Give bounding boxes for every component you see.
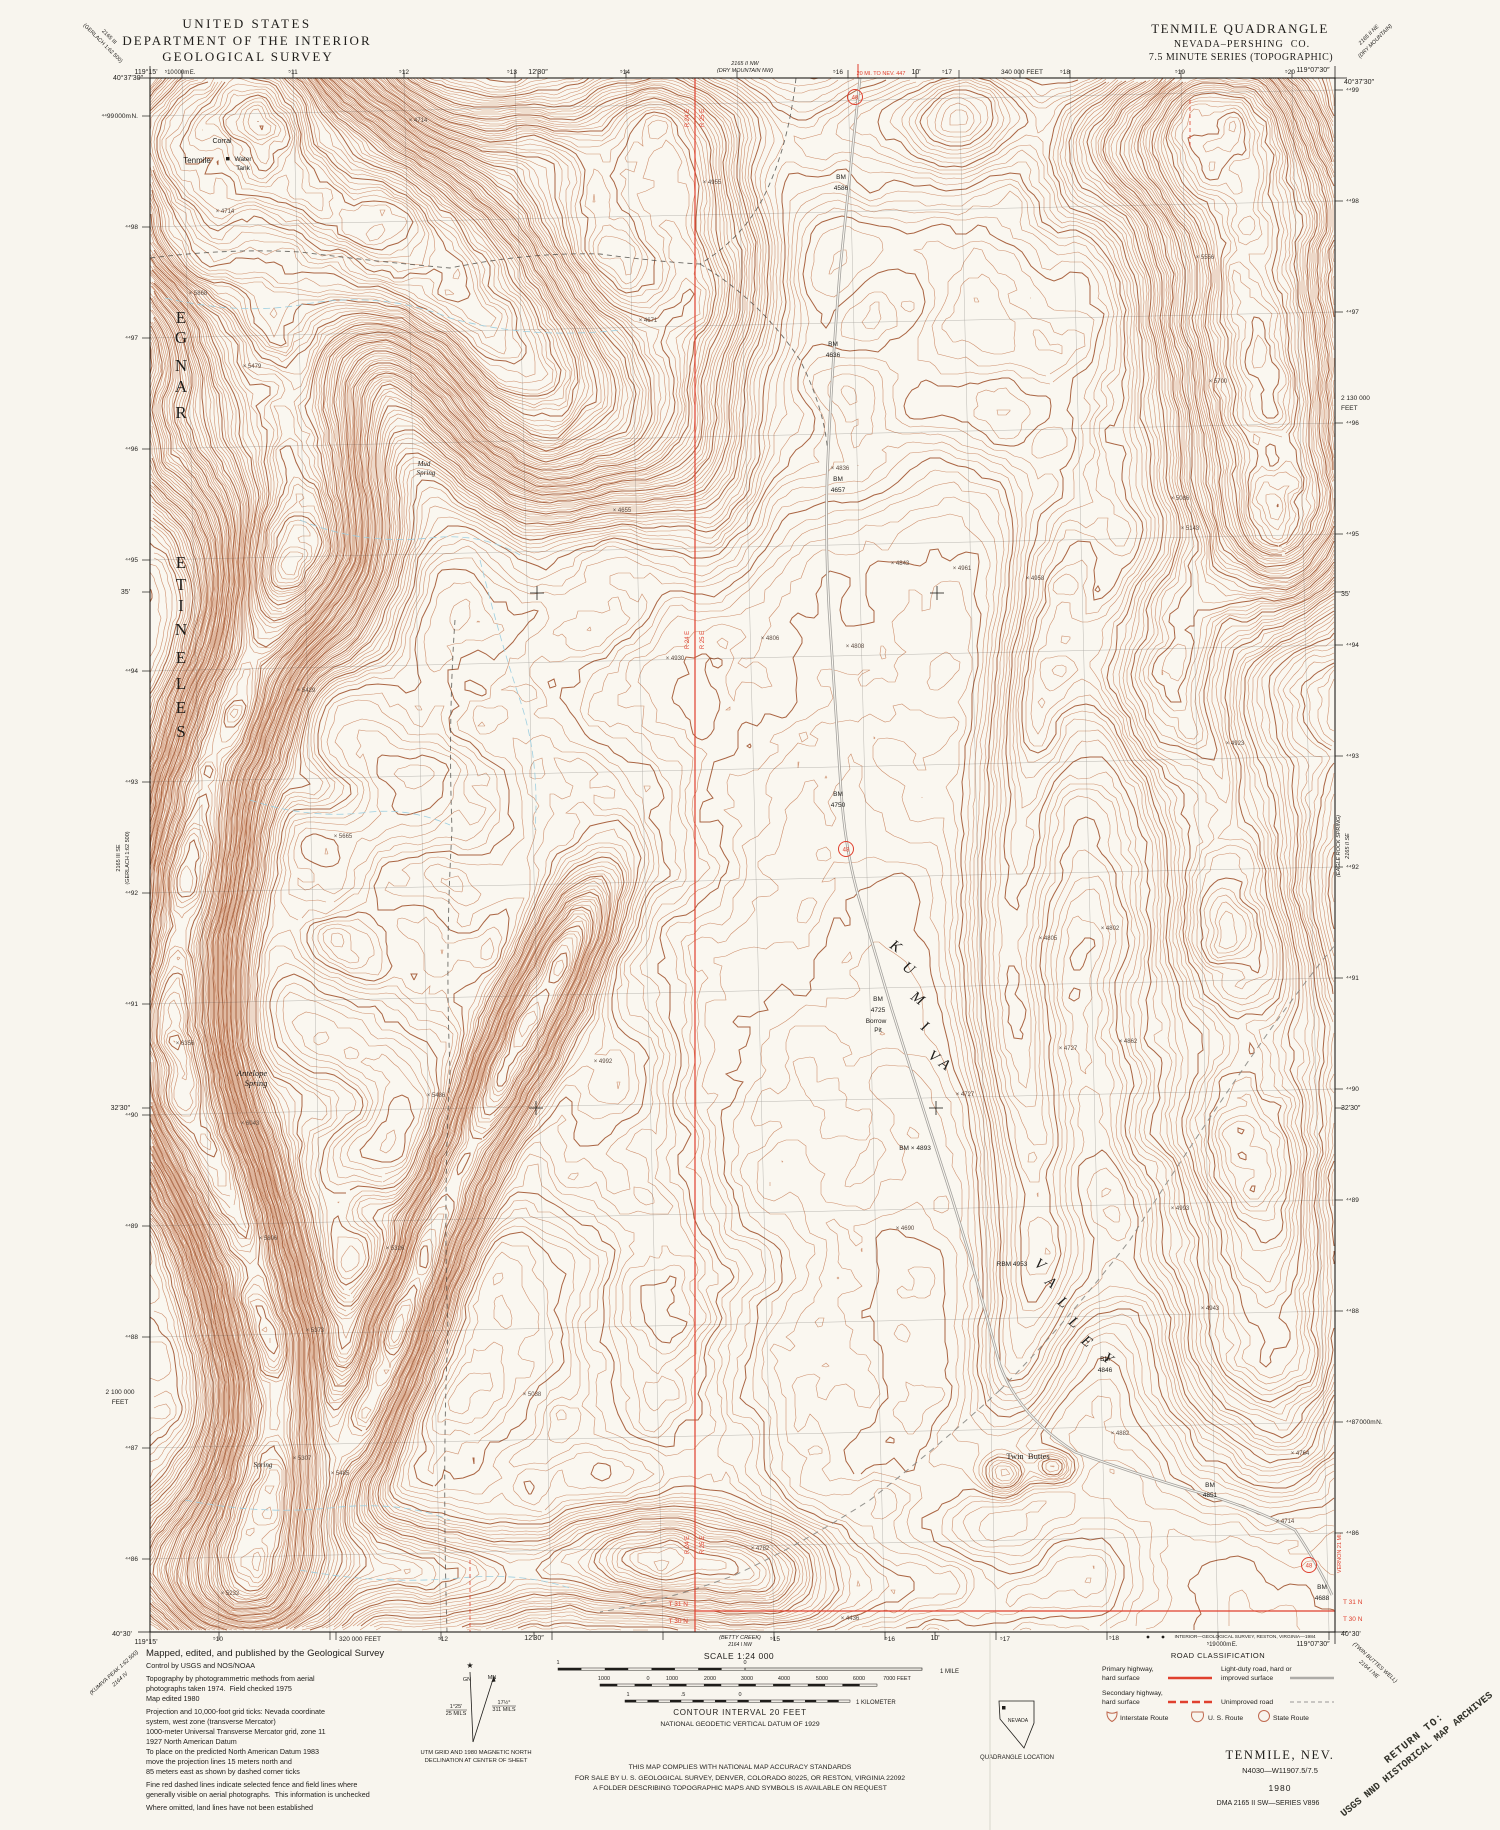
svg-text:⁴⁴88: ⁴⁴88: [125, 1334, 138, 1341]
svg-text:× 4436: × 4436: [841, 1616, 860, 1622]
svg-text:× 4862: × 4862: [1119, 1039, 1138, 1045]
svg-text:2165 II NW: 2165 II NW: [730, 61, 759, 67]
svg-text:1000: 1000: [666, 1676, 678, 1682]
svg-text:⁵18: ⁵18: [1109, 1635, 1119, 1642]
svg-text:25 MILS: 25 MILS: [446, 1711, 467, 1717]
svg-text:ROAD CLASSIFICATION: ROAD CLASSIFICATION: [1171, 1651, 1265, 1660]
svg-text:Tenmile: Tenmile: [183, 156, 211, 165]
svg-text:⁵18: ⁵18: [1060, 69, 1070, 76]
svg-text:× 5429: × 5429: [297, 688, 316, 694]
svg-text:BM × 4893: BM × 4893: [899, 1145, 931, 1152]
svg-text:× 4727: × 4727: [956, 1092, 975, 1098]
svg-text:× 5485: × 5485: [331, 1471, 350, 1477]
svg-text:× 4727: × 4727: [1059, 1046, 1078, 1052]
svg-text:Borrow: Borrow: [866, 1018, 887, 1025]
svg-text:× 5086: × 5086: [1171, 496, 1190, 502]
svg-text:⁴⁴90: ⁴⁴90: [1346, 1086, 1359, 1093]
svg-text:× 5232: × 5232: [221, 1591, 240, 1597]
svg-text:⁵11: ⁵11: [288, 69, 298, 76]
svg-text:17½°: 17½°: [498, 1699, 511, 1706]
svg-text:⁴⁴87 000m N.: ⁴⁴87 000m N.: [1346, 1419, 1383, 1426]
svg-text:Corral: Corral: [212, 138, 232, 145]
svg-text:× 5665: × 5665: [334, 834, 353, 840]
svg-text:7.5 MINUTE SERIES (TOPOGRAPHIC: 7.5 MINUTE SERIES (TOPOGRAPHIC): [1149, 52, 1333, 63]
svg-text:BM: BM: [836, 174, 846, 181]
svg-text:Water: Water: [234, 156, 252, 163]
svg-text:⁴⁴90: ⁴⁴90: [125, 1112, 138, 1119]
svg-text:48: 48: [843, 848, 850, 854]
svg-text:1000: 1000: [598, 1676, 610, 1682]
svg-text:hard surface: hard surface: [1102, 1675, 1140, 1682]
svg-text:⁵16: ⁵16: [885, 1636, 895, 1643]
svg-text:Antelope: Antelope: [236, 1068, 267, 1078]
svg-text:× 4930: × 4930: [666, 656, 685, 662]
svg-text:BM: BM: [1317, 1584, 1327, 1591]
svg-text:4586: 4586: [834, 185, 849, 192]
svg-text:E: E: [176, 698, 186, 717]
svg-text:2000: 2000: [704, 1676, 716, 1682]
svg-text:119°07'30″: 119°07'30″: [1296, 66, 1330, 74]
svg-text:40°30': 40°30': [112, 1630, 132, 1638]
svg-text:⁴⁴96: ⁴⁴96: [125, 446, 138, 453]
svg-text:★: ★: [466, 1661, 473, 1670]
svg-text:(BETTY CREEK): (BETTY CREEK): [719, 1635, 761, 1641]
svg-text:photographs taken 1974. Field: photographs taken 1974. Field checked 19…: [146, 1684, 292, 1693]
svg-text:NATIONAL GEODETIC VERTICAL DAT: NATIONAL GEODETIC VERTICAL DATUM OF 1929: [660, 1721, 819, 1728]
svg-text:Interstate Route: Interstate Route: [1120, 1715, 1169, 1722]
svg-text:⁴⁴95: ⁴⁴95: [125, 557, 138, 564]
svg-text:A: A: [175, 377, 188, 396]
svg-text:system, west zone (transverse: system, west zone (transverse Mercator): [146, 1717, 276, 1726]
svg-text:(DRY MOUNTAIN NW): (DRY MOUNTAIN NW): [717, 68, 773, 74]
svg-text:QUADRANGLE LOCATION: QUADRANGLE LOCATION: [980, 1755, 1054, 1761]
svg-text:E: E: [176, 308, 186, 327]
svg-text:⁵17: ⁵17: [942, 69, 952, 76]
svg-text:generally visible on aerial ph: generally visible on aerial photographs.…: [146, 1790, 370, 1799]
svg-text:Spring: Spring: [417, 469, 436, 477]
svg-text:R 25 E: R 25 E: [700, 631, 706, 649]
svg-text:⁴⁴97: ⁴⁴97: [125, 335, 138, 342]
svg-text:NEVADA: NEVADA: [1008, 1718, 1029, 1724]
svg-text:move the projection lines 15 m: move the projection lines 15 meters nort…: [146, 1757, 292, 1766]
svg-text:⁴⁴98: ⁴⁴98: [1346, 198, 1359, 205]
svg-text:× 4782: × 4782: [751, 1546, 770, 1552]
svg-text:T 31 N: T 31 N: [669, 1601, 689, 1608]
svg-text:N4030—W11907.5/7.5: N4030—W11907.5/7.5: [1242, 1766, 1318, 1775]
svg-text:R 25 E: R 25 E: [700, 109, 706, 127]
svg-text:R 25 E: R 25 E: [700, 1536, 706, 1554]
svg-text:improved surface: improved surface: [1221, 1675, 1273, 1682]
svg-text:× 4882: × 4882: [1111, 1431, 1130, 1437]
svg-text:T 30 N: T 30 N: [669, 1618, 689, 1625]
svg-text:40°37'30″: 40°37'30″: [1344, 78, 1374, 86]
svg-text:× 4764: × 4764: [1291, 1451, 1310, 1457]
svg-text:N: N: [175, 356, 187, 375]
svg-text:FEET: FEET: [1341, 405, 1358, 412]
svg-text:6000: 6000: [853, 1676, 865, 1682]
svg-text:⁴⁴96: ⁴⁴96: [1346, 420, 1359, 427]
svg-text:32'30″: 32'30″: [111, 1105, 131, 1112]
svg-text:Mapped, edited, and published: Mapped, edited, and published by the Geo…: [146, 1648, 384, 1659]
svg-text:× 5326: × 5326: [386, 1246, 405, 1252]
svg-text:⁴⁴97: ⁴⁴97: [1346, 309, 1359, 316]
svg-text:.5: .5: [681, 1692, 686, 1698]
svg-text:2165 II SE: 2165 II SE: [1345, 833, 1351, 860]
svg-text:(EAGLE ROCK SPRING): (EAGLE ROCK SPRING): [1336, 815, 1342, 877]
svg-text:BM: BM: [828, 341, 838, 348]
svg-text:4725: 4725: [871, 1007, 886, 1014]
svg-text:119°15': 119°15': [134, 1638, 157, 1646]
svg-text:State Route: State Route: [1273, 1715, 1309, 1722]
svg-text:MN: MN: [488, 1675, 497, 1681]
svg-text:0: 0: [646, 1676, 649, 1682]
svg-text:3000: 3000: [741, 1676, 753, 1682]
svg-text:I: I: [178, 596, 184, 615]
svg-text:⁴⁴93: ⁴⁴93: [125, 779, 138, 786]
svg-text:BM: BM: [873, 996, 883, 1003]
svg-text:Secondary highway,: Secondary highway,: [1102, 1690, 1163, 1697]
svg-text:1: 1: [626, 1692, 629, 1698]
svg-text:12'30″: 12'30″: [524, 1635, 544, 1642]
svg-text:Mud: Mud: [417, 460, 431, 468]
svg-text:Tank: Tank: [236, 165, 250, 172]
svg-text:× 4958: × 4958: [1026, 576, 1045, 582]
svg-text:⁵10: ⁵10: [213, 1636, 223, 1643]
svg-text:1000-meter Universal Transvers: 1000-meter Universal Transverse Mercator…: [146, 1727, 326, 1736]
svg-text:U. S. Route: U. S. Route: [1208, 1715, 1243, 1722]
svg-text:NEVADA–PERSHING CO.: NEVADA–PERSHING CO.: [1174, 39, 1310, 50]
svg-text:L: L: [176, 674, 186, 693]
svg-text:40°30': 40°30': [1341, 1630, 1361, 1638]
svg-text:⁴⁴93: ⁴⁴93: [1346, 753, 1359, 760]
svg-text:12'30″: 12'30″: [528, 69, 548, 76]
svg-text:T 31 N: T 31 N: [1343, 1599, 1363, 1606]
svg-text:4851: 4851: [1203, 1492, 1218, 1499]
svg-text:UNITED STATES: UNITED STATES: [182, 16, 311, 31]
svg-text:4846: 4846: [1098, 1367, 1113, 1374]
svg-text:× 4806: × 4806: [761, 636, 780, 642]
svg-text:TENMILE QUADRANGLE: TENMILE QUADRANGLE: [1151, 21, 1329, 36]
svg-text:119°07'30″: 119°07'30″: [1296, 1640, 1330, 1648]
svg-text:CONTOUR INTERVAL 20 FEET: CONTOUR INTERVAL 20 FEET: [673, 1708, 807, 1717]
svg-text:⁴⁴94: ⁴⁴94: [125, 668, 138, 675]
svg-text:× 6356: × 6356: [176, 1041, 195, 1047]
svg-text:Light-duty road, hard or: Light-duty road, hard or: [1221, 1666, 1292, 1673]
svg-text:2165 III SE: 2165 III SE: [116, 844, 122, 872]
svg-text:Unimproved road: Unimproved road: [1221, 1699, 1273, 1706]
svg-text:⁵19: ⁵19: [1175, 69, 1185, 76]
svg-text:⁵17: ⁵17: [1000, 1636, 1010, 1643]
svg-text:VERNON 21 MI.: VERNON 21 MI.: [1337, 1532, 1343, 1573]
svg-text:S: S: [176, 722, 185, 741]
svg-text:1: 1: [556, 1660, 559, 1666]
svg-text:× 5700: × 5700: [1209, 379, 1228, 385]
svg-text:⁵13: ⁵13: [507, 69, 517, 76]
svg-text:× 5373: × 5373: [306, 1328, 325, 1334]
svg-text:E: E: [176, 648, 186, 667]
svg-text:1 KILOMETER: 1 KILOMETER: [856, 1700, 896, 1706]
svg-text:⁵19 000m E.: ⁵19 000m E.: [1207, 1641, 1238, 1648]
svg-text:N: N: [175, 620, 187, 639]
svg-text:R 24 E: R 24 E: [685, 1536, 691, 1554]
svg-text:2 100 000: 2 100 000: [106, 1389, 135, 1396]
svg-text:4657: 4657: [831, 487, 846, 494]
svg-text:× 5556: × 5556: [1196, 255, 1215, 261]
svg-text:0: 0: [738, 1692, 741, 1698]
svg-text:DMA 2165 II SW—SERIES V896: DMA 2165 II SW—SERIES V896: [1217, 1800, 1320, 1807]
svg-text:THIS MAP COMPLIES WITH NATIONA: THIS MAP COMPLIES WITH NATIONAL MAP ACCU…: [629, 1764, 852, 1771]
svg-text:85 meters east as shown by das: 85 meters east as shown by dashed corner…: [146, 1767, 300, 1776]
svg-text:⁴⁴91: ⁴⁴91: [1346, 975, 1359, 982]
svg-text:FEET: FEET: [112, 1399, 129, 1406]
svg-text:1 MILE: 1 MILE: [940, 1669, 959, 1675]
svg-text:T 30 N: T 30 N: [1343, 1616, 1363, 1623]
svg-text:4688: 4688: [1315, 1595, 1330, 1602]
svg-text:× 5038: × 5038: [523, 1392, 542, 1398]
svg-text:× 4992: × 4992: [594, 1059, 613, 1065]
svg-text:R 24 E: R 24 E: [685, 631, 691, 649]
svg-text:⁴⁴88: ⁴⁴88: [1346, 1308, 1359, 1315]
svg-text:Where omitted, land lines have: Where omitted, land lines have not been …: [146, 1803, 313, 1812]
svg-text:× 4923: × 4923: [1226, 741, 1245, 747]
svg-text:× 4655: × 4655: [613, 508, 632, 514]
svg-text:INTERIOR—GEOLOGICAL SURVEY, RE: INTERIOR—GEOLOGICAL SURVEY, RESTON, VIRG…: [1174, 1634, 1315, 1640]
svg-text:4000: 4000: [778, 1676, 790, 1682]
svg-text:BM: BM: [1205, 1482, 1215, 1489]
svg-text:× 4805: × 4805: [1039, 936, 1058, 942]
svg-text:TENMILE, NEV.: TENMILE, NEV.: [1225, 1748, 1334, 1762]
svg-text:GEOLOGICAL SURVEY: GEOLOGICAL SURVEY: [162, 49, 334, 64]
svg-text:⁴⁴86: ⁴⁴86: [125, 1556, 138, 1563]
svg-text:Map edited 1980: Map edited 1980: [146, 1694, 200, 1703]
svg-text:1980: 1980: [1269, 1783, 1292, 1793]
svg-text:E: E: [176, 553, 186, 572]
svg-text:Topography by photogrammetric: Topography by photogrammetric methods fr…: [146, 1674, 315, 1683]
svg-text:× 4714: × 4714: [1276, 1519, 1295, 1525]
svg-text:× 5806: × 5806: [259, 1236, 278, 1242]
svg-text:⁵15: ⁵15: [770, 1636, 780, 1643]
svg-text:UTM GRID AND 1980 MAGNETIC NOR: UTM GRID AND 1980 MAGNETIC NORTH: [420, 1750, 531, 1756]
svg-text:⁴⁴99 000m N.: ⁴⁴99 000m N.: [101, 113, 138, 120]
svg-text:⁴⁴92: ⁴⁴92: [125, 890, 138, 897]
svg-text:Pit: Pit: [874, 1027, 882, 1034]
svg-text:⁴⁴87: ⁴⁴87: [125, 1445, 138, 1452]
svg-text:BM: BM: [833, 791, 843, 798]
svg-text:× 4955: × 4955: [703, 180, 722, 186]
svg-text:× 6043: × 6043: [241, 1121, 260, 1127]
svg-text:A FOLDER DESCRIBING TOPOGRAPHI: A FOLDER DESCRIBING TOPOGRAPHIC MAPS AND…: [593, 1785, 887, 1792]
svg-text:× 4961: × 4961: [953, 566, 972, 572]
svg-text:4636: 4636: [826, 352, 841, 359]
svg-text:Twin Buttes: Twin Buttes: [1006, 1451, 1049, 1461]
svg-text:DECLINATION AT CENTER OF SHEET: DECLINATION AT CENTER OF SHEET: [425, 1758, 528, 1764]
svg-text:Primary highway,: Primary highway,: [1102, 1666, 1154, 1673]
svg-text:48: 48: [852, 96, 859, 102]
svg-text:FOR SALE BY U. S. GEOLOGICAL S: FOR SALE BY U. S. GEOLOGICAL SURVEY, DEN…: [575, 1775, 905, 1782]
svg-text:4750: 4750: [831, 802, 846, 809]
svg-text:Spring: Spring: [254, 1461, 273, 1469]
svg-text:⁴⁴91: ⁴⁴91: [125, 1001, 138, 1008]
svg-text:× 4993: × 4993: [1171, 1206, 1190, 1212]
svg-text:⁴⁴98: ⁴⁴98: [125, 224, 138, 231]
svg-text:⁵12: ⁵12: [438, 1636, 448, 1643]
svg-text:7000 FEET: 7000 FEET: [883, 1676, 911, 1682]
svg-text:T: T: [176, 575, 187, 594]
svg-text:2164 I NW: 2164 I NW: [727, 1642, 753, 1648]
svg-text:⁴⁴95: ⁴⁴95: [1346, 531, 1359, 538]
svg-text:DEPARTMENT OF THE INTERIOR: DEPARTMENT OF THE INTERIOR: [122, 33, 371, 48]
svg-text:⁵20: ⁵20: [1285, 69, 1295, 76]
svg-text:2 130 000: 2 130 000: [1341, 395, 1370, 402]
svg-text:32'30″: 32'30″: [1341, 1105, 1361, 1112]
svg-text:R: R: [175, 403, 187, 422]
svg-text:⁴⁴99: ⁴⁴99: [1346, 87, 1359, 94]
svg-text:× 5143: × 5143: [1181, 526, 1200, 532]
svg-text:1°25': 1°25': [450, 1704, 462, 1710]
svg-text:× 5486: × 5486: [427, 1093, 446, 1099]
svg-text:5000: 5000: [816, 1676, 828, 1682]
svg-text:1927 North American Datum: 1927 North American Datum: [146, 1737, 237, 1746]
svg-text:⁴⁴89: ⁴⁴89: [1346, 1197, 1359, 1204]
svg-text:320 000 FEET: 320 000 FEET: [339, 1636, 381, 1643]
svg-text:48: 48: [1306, 1564, 1313, 1570]
svg-text:(GERLACH 1:62 500): (GERLACH 1:62 500): [125, 831, 131, 884]
svg-text:× 4671: × 4671: [639, 318, 658, 324]
svg-text:GN: GN: [463, 1677, 471, 1683]
svg-text:× 4943: × 4943: [1201, 1306, 1220, 1312]
svg-text:Fine red dashed lines indicate: Fine red dashed lines indicate selected …: [146, 1780, 357, 1789]
svg-text:× 4843: × 4843: [891, 561, 910, 567]
svg-text:× 4714: × 4714: [216, 209, 235, 215]
svg-text:⁴⁴89: ⁴⁴89: [125, 1223, 138, 1230]
svg-text:hard surface: hard surface: [1102, 1699, 1140, 1706]
svg-text:Projection and 10,000-foot gri: Projection and 10,000-foot grid ticks: N…: [146, 1707, 325, 1716]
svg-text:× 5868: × 5868: [189, 291, 208, 297]
svg-text:⁵14: ⁵14: [620, 69, 630, 76]
svg-text:⁴⁴86: ⁴⁴86: [1346, 1530, 1359, 1537]
svg-text:× 4714: × 4714: [409, 118, 428, 124]
svg-text:× 4836: × 4836: [831, 466, 850, 472]
svg-text:Control by USGS and NOS/NOAA: Control by USGS and NOS/NOAA: [146, 1661, 255, 1670]
svg-text:RBM 4953: RBM 4953: [997, 1261, 1028, 1268]
svg-text:SCALE 1:24 000: SCALE 1:24 000: [704, 1651, 774, 1661]
svg-text:× 4690: × 4690: [896, 1226, 915, 1232]
svg-text:0: 0: [743, 1660, 746, 1666]
svg-text:BM: BM: [833, 476, 843, 483]
svg-text:35': 35': [1341, 591, 1350, 598]
svg-text:× 4802: × 4802: [1101, 926, 1120, 932]
svg-text:To place on the predicted Nort: To place on the predicted North American…: [146, 1747, 319, 1756]
svg-text:⁵16: ⁵16: [833, 69, 843, 76]
svg-text:⁵10 000m E.: ⁵10 000m E.: [165, 69, 196, 76]
svg-text:35': 35': [121, 589, 130, 596]
svg-text:10': 10': [911, 69, 920, 76]
svg-text:⁴⁴92: ⁴⁴92: [1346, 864, 1359, 871]
svg-text:40°37'30″: 40°37'30″: [113, 74, 143, 82]
svg-text:× 4808: × 4808: [846, 644, 865, 650]
svg-text:340 000 FEET: 340 000 FEET: [1001, 69, 1043, 76]
svg-text:10': 10': [930, 1635, 939, 1642]
svg-text:20 MI. TO NEV. 447: 20 MI. TO NEV. 447: [857, 71, 906, 77]
svg-text:311 MILS: 311 MILS: [492, 1707, 515, 1713]
svg-text:R 24 E: R 24 E: [685, 109, 691, 127]
svg-text:G: G: [175, 328, 187, 347]
svg-text:⁴⁴94: ⁴⁴94: [1346, 642, 1359, 649]
svg-text:× 5307: × 5307: [293, 1456, 312, 1462]
svg-text:⁵12: ⁵12: [399, 69, 409, 76]
svg-text:× 5479: × 5479: [243, 364, 262, 370]
svg-text:Spring: Spring: [245, 1078, 268, 1088]
